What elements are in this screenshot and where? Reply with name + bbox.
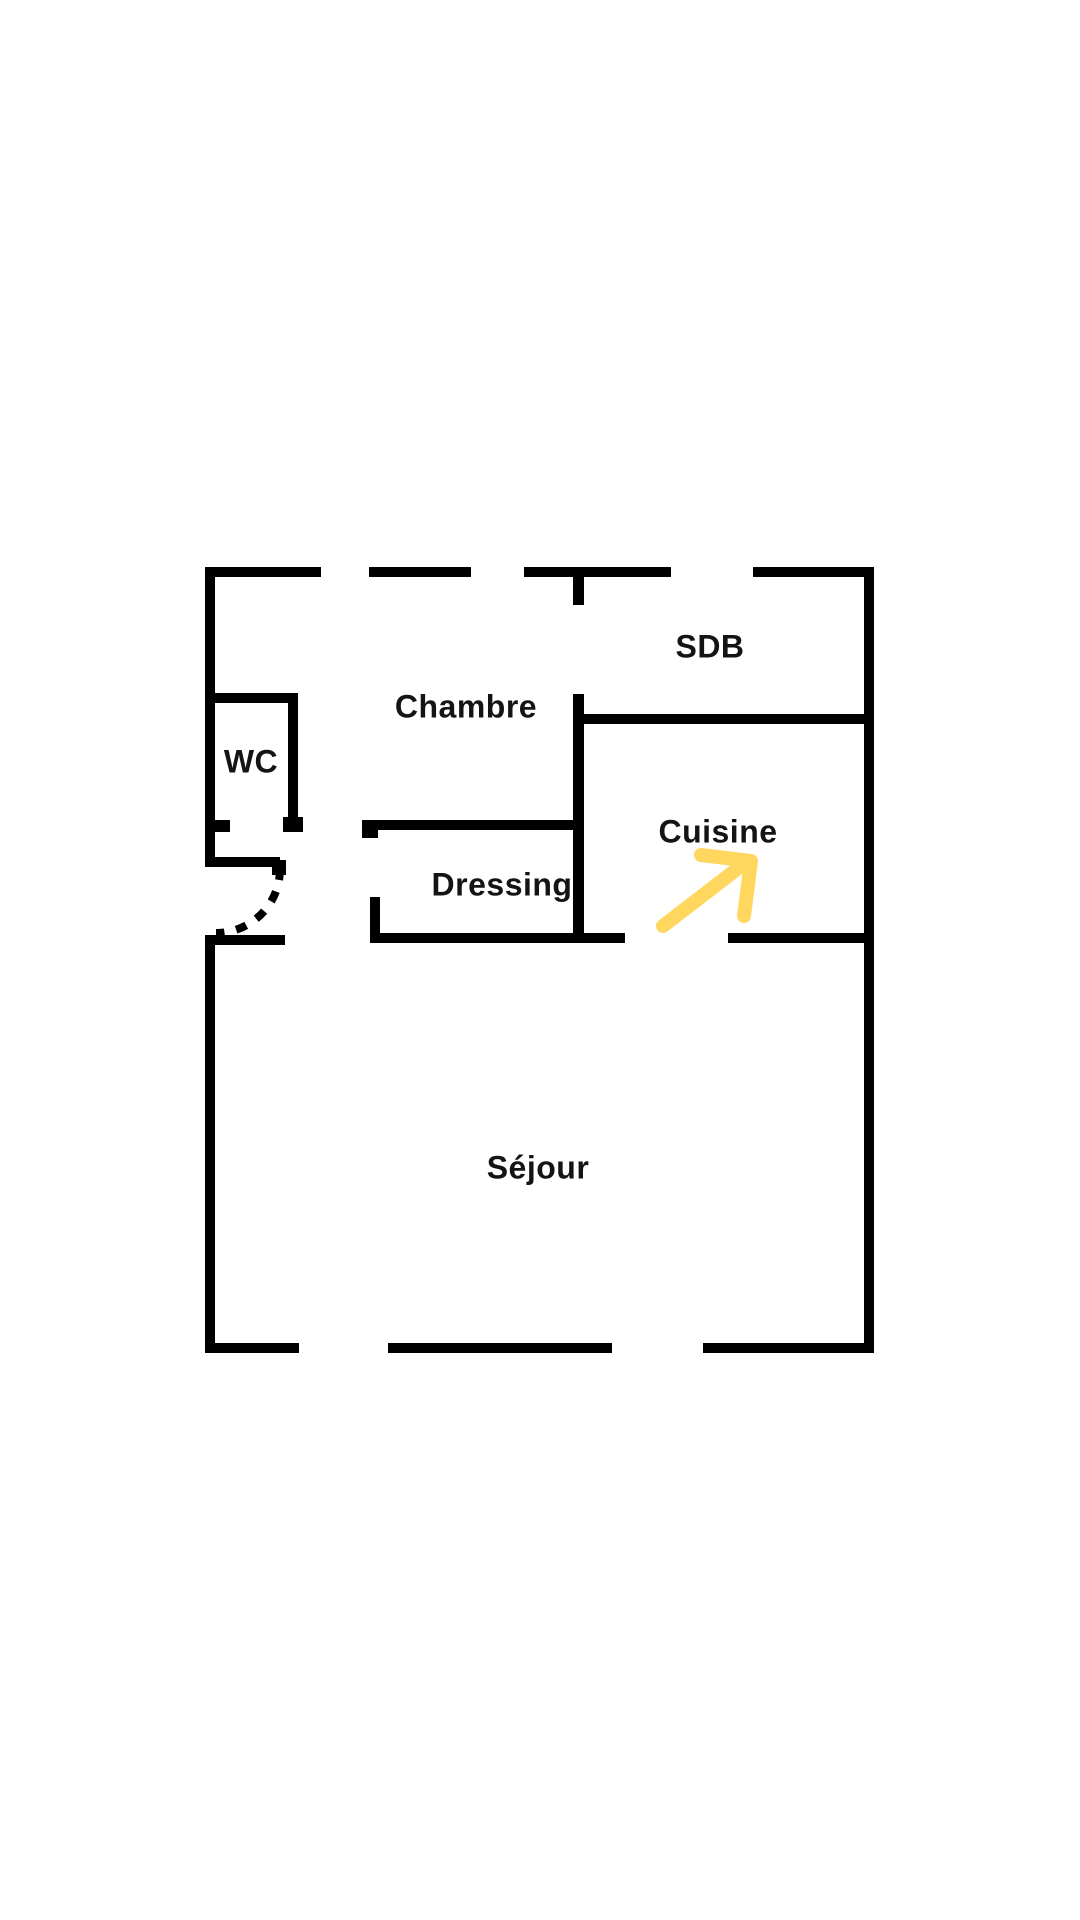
room-label-cuisine: Cuisine [658,814,777,851]
wall-outer-top-3 [524,567,671,577]
room-label-sejour: Séjour [487,1150,590,1187]
wall-outer-bottom-2 [388,1343,612,1353]
wall-sdb-bottom [573,714,874,724]
wall-dressing-left-tick [370,897,380,943]
walls [205,567,874,1353]
floor-plan-drawing [0,0,1080,1920]
wall-wc-right-foot [283,817,303,832]
room-label-sdb: SDB [675,629,744,666]
wall-cuisine-bottom [728,933,874,943]
wall-outer-bottom-3 [703,1343,874,1353]
wall-outer-left-upper [205,567,215,866]
wall-outer-top-4 [753,567,874,577]
wall-outer-bottom-1 [205,1343,299,1353]
arrow-shaft [663,866,741,926]
wall-outer-top-2 [369,567,471,577]
room-label-wc: WC [224,744,278,781]
room-label-dressing: Dressing [432,867,573,904]
wall-outer-top-1 [205,567,321,577]
wall-dressing-bottom [370,933,625,943]
wall-wc-right [288,693,298,817]
wall-divider-top-stub [573,567,584,605]
cuisine-arrow-annotation [663,855,751,926]
wall-outer-left-lower [205,935,215,1353]
wall-divider-main [573,694,584,943]
entry-door-swing-arc [216,869,280,933]
room-label-chambre: Chambre [395,689,537,726]
floor-plan-canvas: SDB Chambre WC Cuisine Dressing Séjour [0,0,1080,1920]
wall-outer-right [864,567,874,1353]
wall-hall-top [205,857,280,867]
wall-chambre-dressing [362,820,584,830]
wall-chambre-dressing-tick [362,820,378,838]
wall-wc-top [215,693,298,703]
wall-wc-left-tick [215,820,230,832]
